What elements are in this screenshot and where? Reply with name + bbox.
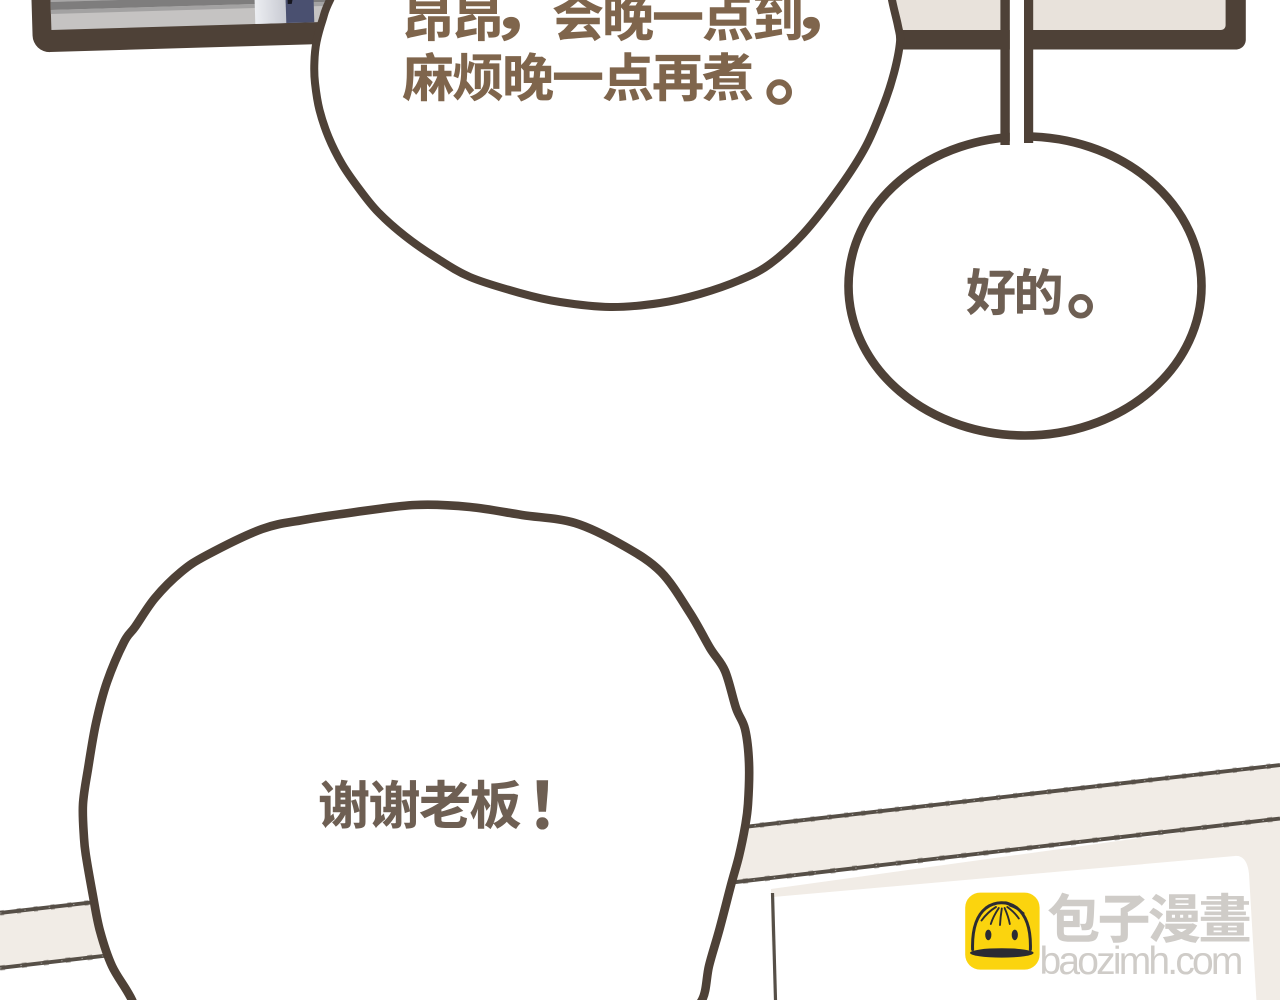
svg-text:baozimh.com: baozimh.com — [1040, 940, 1241, 983]
